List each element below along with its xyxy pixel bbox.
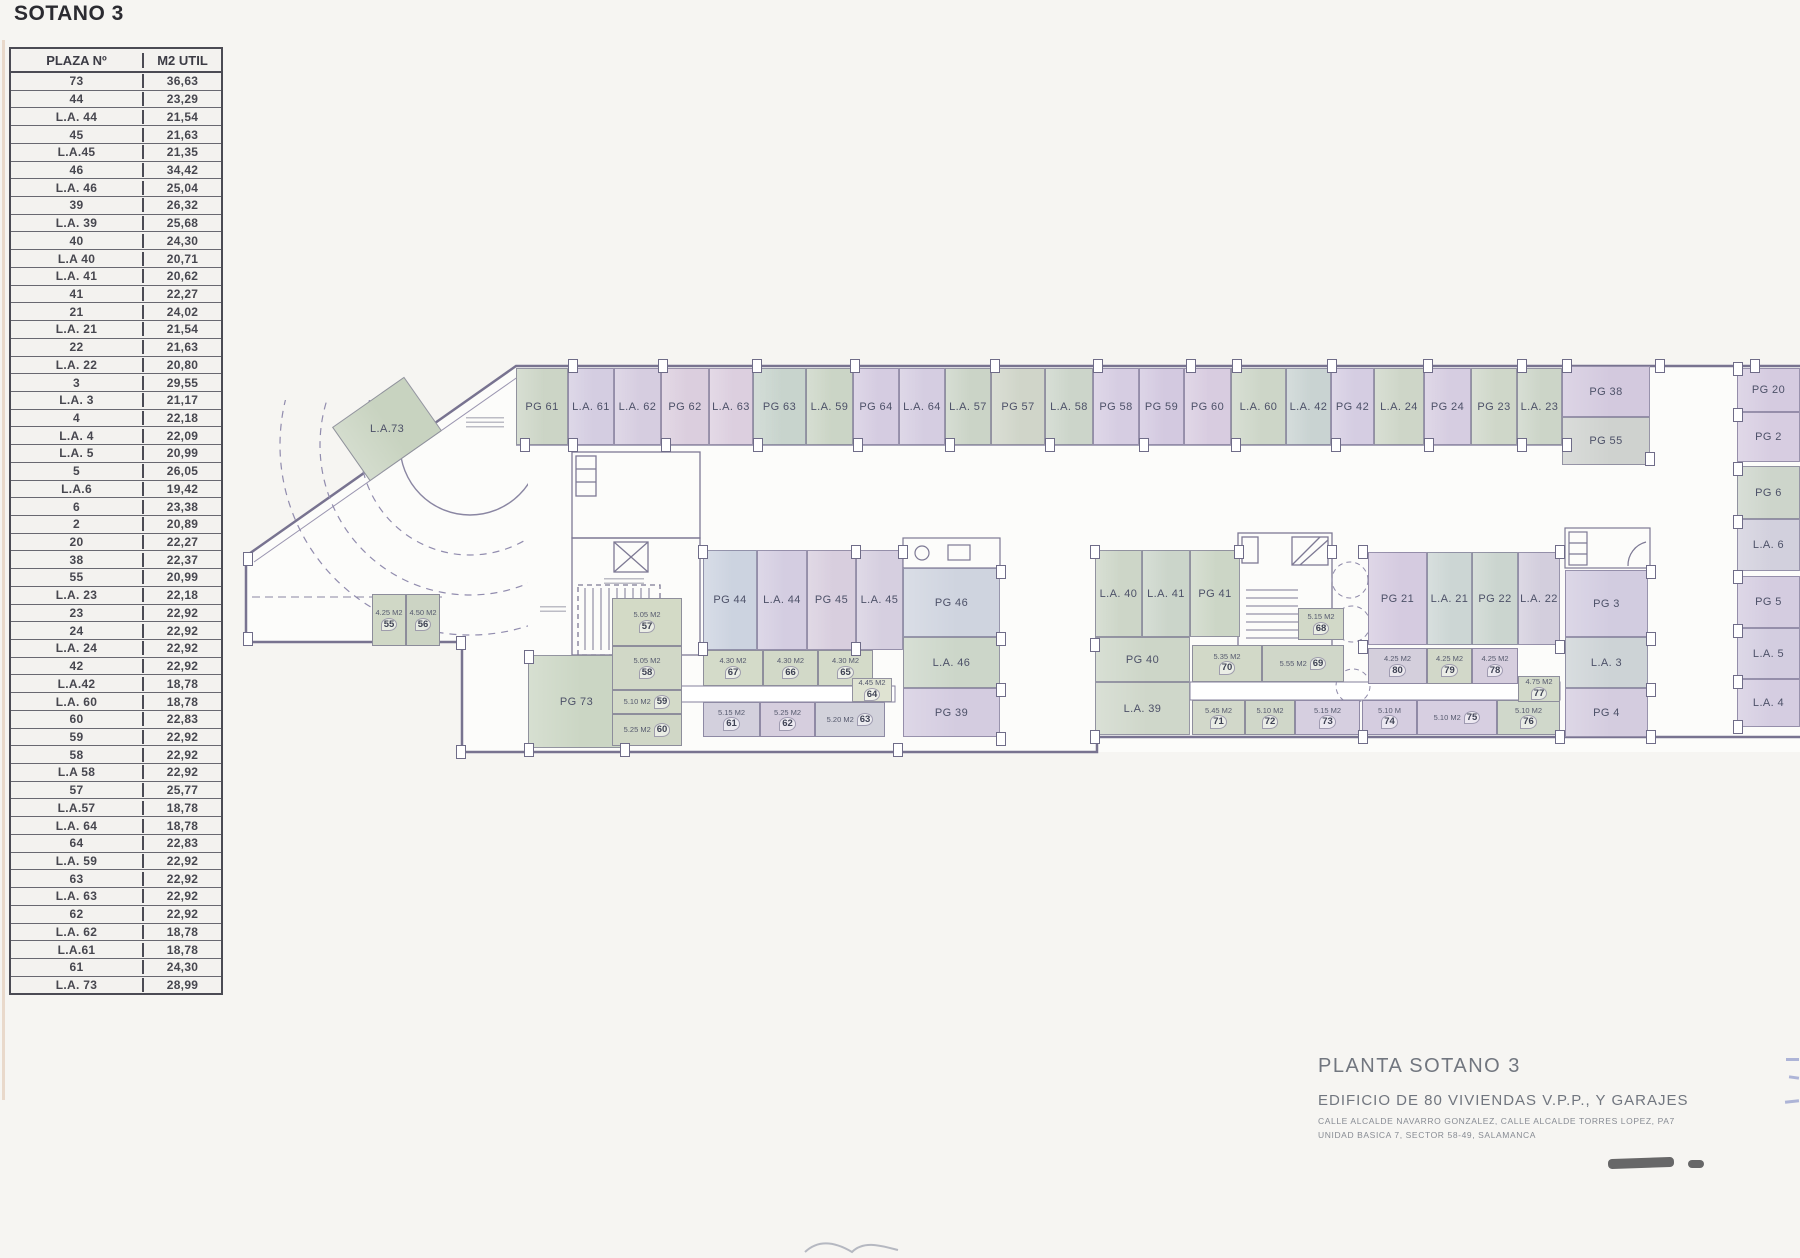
pillar — [1646, 632, 1656, 646]
storeroom-number: 56 — [415, 618, 432, 632]
stall-label: L.A. 64 — [903, 401, 941, 413]
storeroom-area-label: 5.10 M — [1378, 707, 1401, 715]
pillar — [850, 359, 860, 373]
pillar — [752, 359, 762, 373]
parking-stall-pg-40: PG 40 — [1095, 637, 1190, 682]
storeroom-76: 5.10 M276 — [1497, 700, 1560, 735]
storeroom-number: 61 — [723, 717, 740, 731]
storeroom-number: 75 — [1464, 711, 1481, 725]
stall-label: L.A. 24 — [1380, 401, 1418, 413]
pillar — [1555, 640, 1565, 654]
pillar — [661, 438, 671, 452]
parking-stall-l-a-23: L.A. 23 — [1517, 368, 1562, 445]
storeroom-68: 5.15 M268 — [1298, 608, 1344, 640]
stall-label: L.A. 4 — [1753, 697, 1784, 709]
stall-label: L.A. 23 — [1521, 401, 1559, 413]
parking-stall-l-a-57: L.A. 57 — [945, 368, 991, 445]
parking-stall-pg-24: PG 24 — [1424, 368, 1471, 445]
stall-label: L.A. 46 — [933, 657, 971, 669]
storeroom-number: 59 — [654, 695, 671, 709]
stall-label: L.A. 60 — [1240, 401, 1278, 413]
parking-stall-pg-44: PG 44 — [703, 550, 757, 650]
storeroom-number: 79 — [1441, 664, 1458, 678]
pillar — [243, 632, 253, 646]
storeroom-area-label: 4.50 M2 — [409, 609, 436, 617]
pillar — [1646, 730, 1656, 744]
parking-stall-pg-63: PG 63 — [753, 368, 806, 445]
pillar — [1733, 462, 1743, 476]
storeroom-64: 4.45 M264 — [852, 678, 892, 702]
pillar — [243, 552, 253, 566]
pillar — [568, 438, 578, 452]
stall-label: L.A. 42 — [1290, 401, 1328, 413]
stall-label: L.A. 63 — [712, 401, 750, 413]
pillar — [1562, 438, 1572, 452]
parking-stall-pg-23: PG 23 — [1471, 368, 1517, 445]
parking-stall-pg-41: PG 41 — [1190, 550, 1240, 637]
storeroom-71: 5.45 M271 — [1192, 700, 1245, 735]
parking-stall-l-a-60: L.A. 60 — [1231, 368, 1286, 445]
storeroom-number: 57 — [639, 620, 656, 634]
storeroom-number: 58 — [639, 666, 656, 680]
parking-stall-l-a-45: L.A. 45 — [856, 550, 903, 650]
pillar — [945, 438, 955, 452]
storeroom-57: 5.05 M257 — [612, 598, 682, 646]
parking-stall-l-a-61: L.A. 61 — [568, 368, 614, 445]
pillar — [568, 359, 578, 373]
pillar — [996, 732, 1006, 746]
parking-stall-l-a-22: L.A. 22 — [1518, 552, 1560, 645]
pillar — [1090, 730, 1100, 744]
pillar — [1093, 359, 1103, 373]
parking-stall-pg-42: PG 42 — [1331, 368, 1374, 445]
stall-label: PG 44 — [713, 594, 746, 606]
stall-label: PG 57 — [1001, 401, 1034, 413]
stall-label: L.A.73 — [370, 423, 404, 435]
pillar — [1186, 359, 1196, 373]
stall-label: L.A. 21 — [1431, 593, 1469, 605]
storeroom-number: 73 — [1319, 715, 1336, 729]
pillar — [520, 438, 530, 452]
ink-smudge — [1688, 1160, 1704, 1168]
stall-label: PG 60 — [1191, 401, 1224, 413]
pillar — [1655, 359, 1665, 373]
micro-note — [540, 606, 566, 614]
pillar — [1646, 565, 1656, 579]
pillar — [658, 359, 668, 373]
parking-stall-pg-55: PG 55 — [1562, 417, 1650, 465]
stall-label: PG 63 — [763, 401, 796, 413]
storeroom-80: 4.25 M280 — [1368, 648, 1427, 684]
pillar — [1327, 545, 1337, 559]
stall-label: L.A. 41 — [1147, 588, 1185, 600]
storeroom-number: 76 — [1520, 715, 1537, 729]
stall-label: L.A. 59 — [811, 401, 849, 413]
storeroom-area-label: 4.30 M2 — [832, 657, 859, 665]
address-line: CALLE ALCALDE NAVARRO GONZALEZ, CALLE AL… — [1318, 1116, 1688, 1126]
parking-stall-pg-45: PG 45 — [807, 550, 856, 650]
parking-stall-pg-73: PG 73 — [528, 655, 625, 748]
storeroom-area-label: 5.05 M2 — [633, 657, 660, 665]
storeroom-area-label: 5.20 M2 — [827, 716, 854, 724]
plan-title: PLANTA SOTANO 3 — [1318, 1055, 1688, 1078]
stall-label: PG 59 — [1145, 401, 1178, 413]
storeroom-number: 63 — [857, 713, 874, 727]
storeroom-63: 5.20 M263 — [815, 702, 885, 737]
parking-stall-l-a-63: L.A. 63 — [709, 368, 753, 445]
pillar — [851, 642, 861, 656]
pillar — [1733, 362, 1743, 376]
parking-stall-l-a-24: L.A. 24 — [1374, 368, 1424, 445]
parking-stall-l-a-6: L.A. 6 — [1737, 519, 1800, 571]
storeroom-area-label: 5.35 M2 — [1213, 653, 1240, 661]
stall-label: PG 45 — [815, 594, 848, 606]
pillar — [1358, 640, 1368, 654]
stall-label: L.A. 5 — [1753, 648, 1784, 660]
pillar — [1331, 438, 1341, 452]
storeroom-area-label: 5.10 M2 — [624, 698, 651, 706]
pillar — [996, 683, 1006, 697]
parking-stall-pg-64: PG 64 — [853, 368, 899, 445]
parking-stall-pg-2: PG 2 — [1737, 412, 1800, 462]
storeroom-area-label: 5.25 M2 — [624, 726, 651, 734]
pillar — [1424, 438, 1434, 452]
pillar — [698, 642, 708, 656]
storeroom-area-label: 4.25 M2 — [1384, 655, 1411, 663]
storeroom-62: 5.25 M262 — [760, 702, 815, 737]
storeroom-area-label: 5.10 M2 — [1256, 707, 1283, 715]
pillar — [1645, 452, 1655, 466]
storeroom-number: 70 — [1219, 661, 1236, 675]
parking-stall-l-a-58: L.A. 58 — [1045, 368, 1093, 445]
pillar — [1358, 545, 1368, 559]
parking-stall-pg-22: PG 22 — [1472, 552, 1518, 645]
stall-label: L.A. 57 — [949, 401, 987, 413]
storeroom-area-label: 5.05 M2 — [633, 611, 660, 619]
stall-label: PG 46 — [935, 597, 968, 609]
storeroom-58: 5.05 M258 — [612, 646, 682, 690]
storeroom-area-label: 5.10 M2 — [1515, 707, 1542, 715]
pillar — [1423, 359, 1433, 373]
storeroom-number: 72 — [1262, 715, 1279, 729]
stall-label: PG 62 — [668, 401, 701, 413]
parking-stall-pg-6: PG 6 — [1737, 466, 1800, 519]
stall-label: PG 23 — [1477, 401, 1510, 413]
storeroom-number: 55 — [381, 618, 398, 632]
stall-label: L.A. 45 — [861, 594, 899, 606]
pillar — [1090, 638, 1100, 652]
stall-label: PG 6 — [1755, 487, 1782, 499]
storeroom-area-label: 4.30 M2 — [719, 657, 746, 665]
storeroom-area-label: 4.75 M2 — [1525, 678, 1552, 686]
pillar — [524, 743, 534, 757]
parking-stall-pg-38: PG 38 — [1562, 366, 1650, 417]
parking-stall-pg-60: PG 60 — [1184, 368, 1231, 445]
pillar — [620, 743, 630, 757]
stall-label: L.A. 6 — [1753, 539, 1784, 551]
parking-stall-pg-4: PG 4 — [1565, 688, 1648, 737]
stall-label: PG 58 — [1099, 401, 1132, 413]
pillar — [456, 745, 466, 759]
stall-label: PG 5 — [1755, 596, 1782, 608]
storeroom-area-label: 4.45 M2 — [858, 679, 885, 687]
stall-label: PG 38 — [1589, 386, 1622, 398]
stall-label: L.A. 62 — [619, 401, 657, 413]
storeroom-number: 69 — [1310, 657, 1327, 671]
pillar — [753, 438, 763, 452]
storeroom-area-label: 5.55 M2 — [1280, 660, 1307, 668]
stall-label: L.A. 22 — [1520, 593, 1558, 605]
storeroom-number: 74 — [1381, 715, 1398, 729]
parking-stall-l-a-3: L.A. 3 — [1565, 637, 1648, 688]
pillar — [1733, 408, 1743, 422]
stall-label: PG 2 — [1755, 431, 1782, 443]
storeroom-67: 4.30 M267 — [703, 650, 763, 686]
parking-stall-l-a-40: L.A. 40 — [1095, 550, 1142, 637]
parking-stall-l-a-59: L.A. 59 — [806, 368, 853, 445]
parking-stall-l-a-64: L.A. 64 — [899, 368, 945, 445]
stall-label: L.A. 58 — [1050, 401, 1088, 413]
parking-stall-pg-58: PG 58 — [1093, 368, 1139, 445]
building-title: EDIFICIO DE 80 VIVIENDAS V.P.P., Y GARAJ… — [1318, 1092, 1688, 1109]
pillar — [1234, 545, 1244, 559]
parking-stall-l-a-39: L.A. 39 — [1095, 682, 1190, 735]
storeroom-number: 64 — [864, 688, 881, 702]
pillar — [898, 545, 908, 559]
stall-label: PG 55 — [1589, 435, 1622, 447]
sector-line: UNIDAD BASICA 7, SECTOR 58-49, SALAMANCA — [1318, 1130, 1688, 1140]
stall-label: PG 22 — [1478, 593, 1511, 605]
parking-stall-pg-20: PG 20 — [1737, 368, 1800, 412]
micro-note — [604, 578, 644, 586]
storeroom-number: 66 — [782, 666, 799, 680]
pillar — [990, 359, 1000, 373]
parking-stall-pg-39: PG 39 — [903, 688, 1000, 737]
storeroom-area-label: 5.15 M2 — [718, 709, 745, 717]
pillar — [1045, 438, 1055, 452]
parking-stall-l-a-42: L.A. 42 — [1286, 368, 1331, 445]
pillar — [1733, 570, 1743, 584]
pillar — [1750, 359, 1760, 373]
storeroom-area-label: 5.25 M2 — [774, 709, 801, 717]
parking-stall-l-a-62: L.A. 62 — [614, 368, 661, 445]
parking-stall-pg-57: PG 57 — [991, 368, 1045, 445]
storeroom-number: 78 — [1487, 664, 1504, 678]
storeroom-number: 60 — [654, 723, 671, 737]
storeroom-60: 5.25 M260 — [612, 714, 682, 746]
stall-label: PG 24 — [1431, 401, 1464, 413]
parking-stall-pg-21: PG 21 — [1368, 552, 1427, 645]
pillar — [524, 650, 534, 664]
storeroom-70: 5.35 M270 — [1192, 645, 1262, 682]
stall-label: PG 4 — [1593, 707, 1620, 719]
pillar — [1517, 438, 1527, 452]
parking-stall-pg-46: PG 46 — [903, 568, 1000, 637]
pillar — [996, 565, 1006, 579]
stall-label: PG 42 — [1336, 401, 1369, 413]
stall-label: PG 64 — [859, 401, 892, 413]
parking-stall-pg-3: PG 3 — [1565, 570, 1648, 637]
storeroom-72: 5.10 M272 — [1245, 700, 1295, 735]
stall-label: PG 73 — [560, 696, 593, 708]
storeroom-number: 65 — [837, 666, 854, 680]
pillar — [1358, 730, 1368, 744]
pillar — [893, 743, 903, 757]
stall-label: L.A. 40 — [1100, 588, 1138, 600]
storeroom-area-label: 5.10 M2 — [1434, 714, 1461, 722]
parking-stall-l-a-5: L.A. 5 — [1737, 628, 1800, 679]
storeroom-area-label: 4.25 M2 — [1436, 655, 1463, 663]
pillar — [1733, 515, 1743, 529]
storeroom-61: 5.15 M261 — [703, 702, 760, 737]
storeroom-area-label: 5.45 M2 — [1205, 707, 1232, 715]
pillar — [698, 545, 708, 559]
pillar — [853, 438, 863, 452]
parking-stall-l-a-21: L.A. 21 — [1427, 552, 1472, 645]
pillar — [1562, 359, 1572, 373]
storeroom-73: 5.15 M273 — [1295, 700, 1360, 735]
pillar — [1231, 438, 1241, 452]
parking-stall-pg-59: PG 59 — [1139, 368, 1184, 445]
scanned-floor-plan-page: SOTANO 3 PLAZA Nº M2 UTIL 7336,634423,29… — [0, 0, 1800, 1258]
pillar — [1646, 683, 1656, 697]
stall-label: PG 40 — [1126, 654, 1159, 666]
stall-label: PG 21 — [1381, 593, 1414, 605]
storeroom-56: 4.50 M256 — [406, 594, 440, 646]
pillar — [1090, 545, 1100, 559]
stall-label: L.A. 61 — [572, 401, 610, 413]
storeroom-75: 5.10 M275 — [1417, 700, 1497, 735]
parking-stall-pg-5: PG 5 — [1737, 576, 1800, 628]
storeroom-area-label: 4.25 M2 — [1481, 655, 1508, 663]
stall-label: PG 20 — [1752, 384, 1785, 396]
storeroom-number: 80 — [1389, 664, 1406, 678]
pillar — [1733, 675, 1743, 689]
parking-stall-l-a-4: L.A. 4 — [1737, 679, 1800, 727]
parking-stall-l-a-46: L.A. 46 — [903, 637, 1000, 688]
pillar — [456, 636, 466, 650]
parking-stall-pg-62: PG 62 — [661, 368, 709, 445]
storeroom-area-label: 4.30 M2 — [777, 657, 804, 665]
storeroom-area-label: 5.15 M2 — [1314, 707, 1341, 715]
storeroom-area-label: 4.25 M2 — [375, 609, 402, 617]
parking-stall-l-a-44: L.A. 44 — [757, 550, 807, 650]
stall-label: PG 61 — [525, 401, 558, 413]
title-block: PLANTA SOTANO 3 EDIFICIO DE 80 VIVIENDAS… — [1318, 1055, 1688, 1140]
storeroom-number: 67 — [725, 666, 742, 680]
parking-stall-pg-61: PG 61 — [516, 368, 568, 445]
storeroom-number: 77 — [1531, 687, 1548, 701]
pillar — [1232, 359, 1242, 373]
stall-label: L.A. 39 — [1124, 703, 1162, 715]
micro-note — [466, 417, 504, 428]
storeroom-66: 4.30 M266 — [763, 650, 818, 686]
pillar — [1517, 359, 1527, 373]
pillar — [1733, 720, 1743, 734]
pillar — [996, 632, 1006, 646]
pillar — [1733, 624, 1743, 638]
stall-label: L.A. 44 — [763, 594, 801, 606]
storeroom-number: 71 — [1210, 715, 1227, 729]
pillar — [1555, 545, 1565, 559]
stall-label: PG 3 — [1593, 598, 1620, 610]
parking-stall-l-a-41: L.A. 41 — [1142, 550, 1190, 637]
pillar — [851, 545, 861, 559]
stall-label: PG 39 — [935, 707, 968, 719]
storeroom-59: 5.10 M259 — [612, 690, 682, 714]
stall-label: L.A. 3 — [1591, 657, 1622, 669]
storeroom-area-label: 5.15 M2 — [1307, 613, 1334, 621]
pillar — [1327, 359, 1337, 373]
blue-pen-mark — [1786, 1058, 1799, 1061]
stall-label: PG 41 — [1198, 588, 1231, 600]
corridor-right — [1190, 682, 1560, 700]
pillar — [1555, 730, 1565, 744]
storeroom-55: 4.25 M255 — [372, 594, 406, 646]
pen-scribble — [805, 1243, 898, 1252]
storeroom-69: 5.55 M269 — [1262, 645, 1344, 682]
storeroom-77: 4.75 M277 — [1518, 676, 1560, 702]
storeroom-78: 4.25 M278 — [1472, 648, 1518, 684]
storeroom-79: 4.25 M279 — [1427, 648, 1472, 684]
pillar — [1139, 438, 1149, 452]
storeroom-number: 68 — [1313, 622, 1330, 636]
storeroom-number: 62 — [779, 717, 796, 731]
storeroom-74: 5.10 M74 — [1362, 700, 1417, 735]
